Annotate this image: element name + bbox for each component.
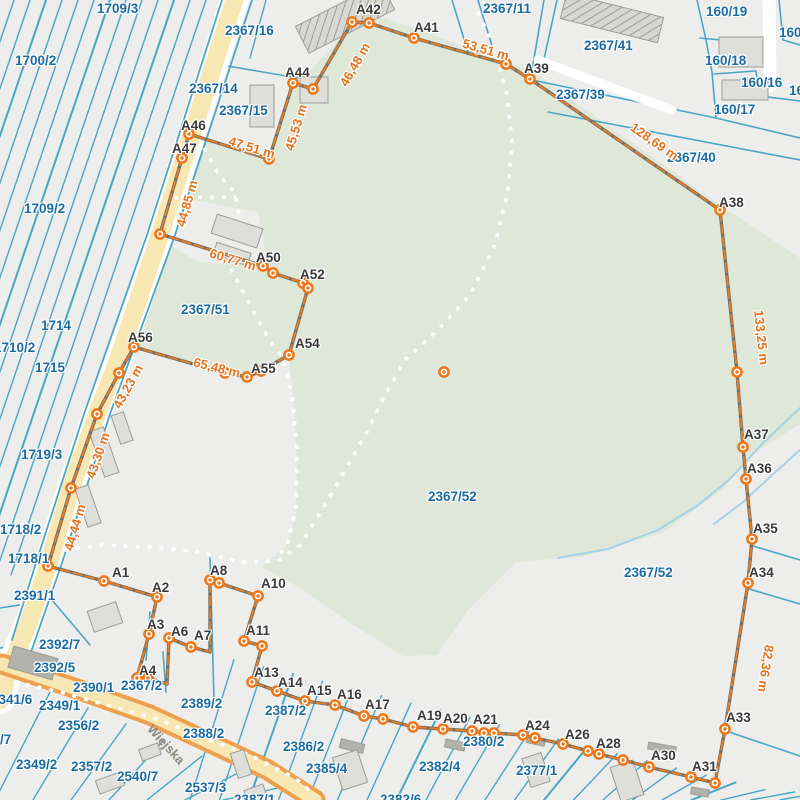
boundary-point-marker[interactable]: [364, 18, 373, 27]
boundary-point-marker[interactable]: [583, 746, 592, 755]
boundary-point-marker[interactable]: [253, 591, 262, 600]
map-canvas[interactable]: 1709/32367/162367/11160/19160/181700/223…: [0, 0, 800, 800]
boundary-point-marker[interactable]: [308, 84, 317, 93]
boundary-point-marker[interactable]: [378, 714, 387, 723]
boundary-point-marker[interactable]: [467, 726, 476, 735]
boundary-point-marker[interactable]: [220, 368, 229, 377]
boundary-point-marker[interactable]: [347, 17, 356, 26]
boundary-point-marker[interactable]: [558, 739, 567, 748]
boundary-point-marker[interactable]: [242, 372, 251, 381]
boundary-point-marker[interactable]: [186, 642, 195, 651]
boundary-point-marker[interactable]: [143, 673, 152, 682]
boundary-point-marker[interactable]: [738, 442, 747, 451]
boundary-point-marker[interactable]: [256, 366, 265, 375]
boundary-point-marker[interactable]: [530, 733, 539, 742]
boundary-point-marker[interactable]: [710, 778, 719, 787]
boundary-point-marker[interactable]: [741, 474, 750, 483]
boundary-point-marker[interactable]: [132, 673, 141, 682]
boundary-point-marker[interactable]: [408, 722, 417, 731]
boundary-point-marker[interactable]: [164, 633, 173, 642]
boundary-point-marker[interactable]: [300, 696, 309, 705]
map-graphics: [0, 0, 800, 800]
boundary-point-marker[interactable]: [177, 153, 186, 162]
boundary-point-marker[interactable]: [743, 578, 752, 587]
boundary-point-marker[interactable]: [268, 268, 277, 277]
boundary-point-marker[interactable]: [43, 561, 52, 570]
boundary-point-marker[interactable]: [288, 78, 297, 87]
boundary-point-marker[interactable]: [409, 33, 418, 42]
boundary-point-marker[interactable]: [114, 368, 123, 377]
boundary-point-marker[interactable]: [184, 129, 193, 138]
boundary-point-marker[interactable]: [439, 367, 448, 376]
boundary-point-marker[interactable]: [284, 350, 293, 359]
boundary-point-marker[interactable]: [144, 629, 153, 638]
boundary-point-marker[interactable]: [330, 700, 339, 709]
boundary-point-marker[interactable]: [264, 154, 273, 163]
boundary-point-marker[interactable]: [152, 592, 161, 601]
boundary-point-marker[interactable]: [525, 74, 534, 83]
boundary-point-marker[interactable]: [747, 534, 756, 543]
boundary-point-marker[interactable]: [303, 283, 312, 292]
boundary-point-marker[interactable]: [66, 483, 75, 492]
boundary-point-marker[interactable]: [644, 762, 653, 771]
boundary-point-marker[interactable]: [155, 229, 164, 238]
boundary-point-marker[interactable]: [715, 205, 724, 214]
boundary-point-marker[interactable]: [359, 711, 368, 720]
boundary-point-marker[interactable]: [732, 367, 741, 376]
boundary-point-marker[interactable]: [594, 749, 603, 758]
boundary-point-marker[interactable]: [518, 730, 527, 739]
boundary-point-marker[interactable]: [479, 728, 488, 737]
boundary-point-marker[interactable]: [489, 728, 498, 737]
boundary-point-marker[interactable]: [247, 677, 256, 686]
boundary-point-marker[interactable]: [239, 636, 248, 645]
boundary-point-marker[interactable]: [92, 409, 101, 418]
boundary-point-marker[interactable]: [258, 261, 267, 270]
boundary-point-marker[interactable]: [438, 724, 447, 733]
boundary-point-marker[interactable]: [501, 59, 510, 68]
boundary-point-marker[interactable]: [99, 576, 108, 585]
boundary-point-marker[interactable]: [686, 772, 695, 781]
boundary-point-marker[interactable]: [257, 641, 266, 650]
boundary-point-marker[interactable]: [720, 724, 729, 733]
boundary-point-marker[interactable]: [272, 686, 281, 695]
boundary-point-marker[interactable]: [618, 755, 627, 764]
boundary-point-marker[interactable]: [129, 342, 138, 351]
boundary-point-marker[interactable]: [214, 578, 223, 587]
